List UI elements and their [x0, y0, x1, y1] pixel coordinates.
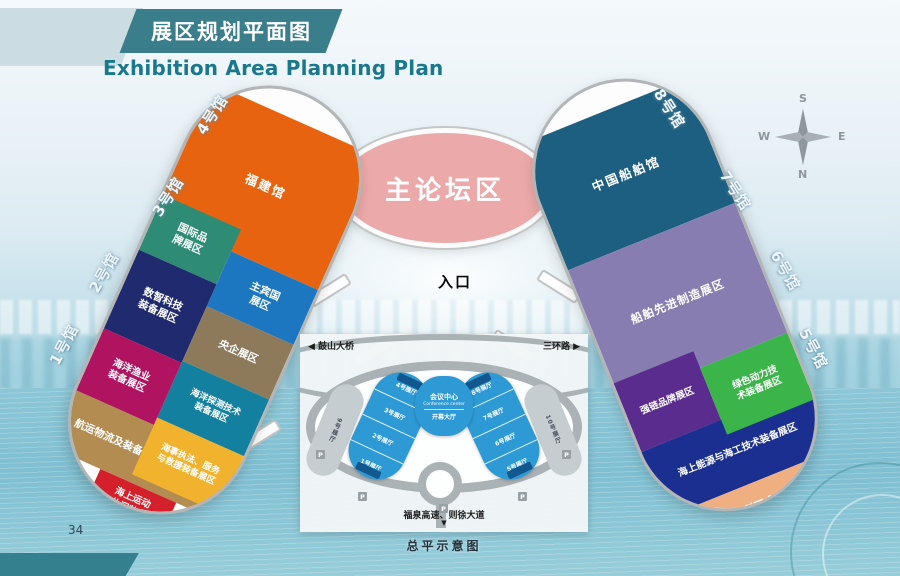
inset-conference-center-cn: 会议中心	[430, 392, 458, 402]
inset-divider	[424, 409, 465, 410]
inset-conference-center-en: Conference center	[423, 402, 465, 407]
parking-icon: P	[518, 492, 527, 501]
compass-north-label: N	[798, 168, 807, 181]
compass-star-icon	[772, 106, 834, 168]
header-banner: 展区规划平面图	[120, 9, 343, 53]
corner-teal-wedge	[0, 553, 139, 576]
compass-west-label: W	[758, 130, 770, 143]
inset-road-third-ring: 三环路 ▶	[543, 339, 580, 352]
main-forum-label: 主论坛区	[385, 170, 505, 207]
compass-rose: S N W E	[758, 92, 848, 182]
entrance-label: 入口	[425, 271, 485, 292]
inset-road-bottom-arrow: ▼	[300, 519, 588, 527]
inset-conference-center: 会议中心 Conference center 开幕大厅	[415, 376, 473, 436]
parking-icon: P	[316, 450, 325, 459]
inset-opening-hall: 开幕大厅	[432, 412, 456, 421]
compass-south-label: S	[799, 92, 807, 105]
slide-stage: 展区规划平面图 Exhibition Area Planning Plan S …	[0, 0, 900, 576]
site-plan-inset: ◀ 鼓山大桥 三环路 ▶ 9号展厅 10号展厅 4号展厅 3号展厅 2号展厅 1…	[300, 334, 588, 532]
compass-east-label: E	[838, 130, 846, 143]
parking-icon: P	[358, 492, 367, 501]
page-title-cn: 展区规划平面图	[151, 16, 312, 46]
parking-icon: P	[562, 450, 571, 459]
inset-road-gushan-bridge: ◀ 鼓山大桥	[308, 339, 354, 352]
page-title-en: Exhibition Area Planning Plan	[103, 56, 443, 80]
page-number: 34	[68, 523, 83, 537]
inset-roundabout	[418, 462, 462, 506]
inset-caption: 总平示意图	[300, 537, 588, 554]
